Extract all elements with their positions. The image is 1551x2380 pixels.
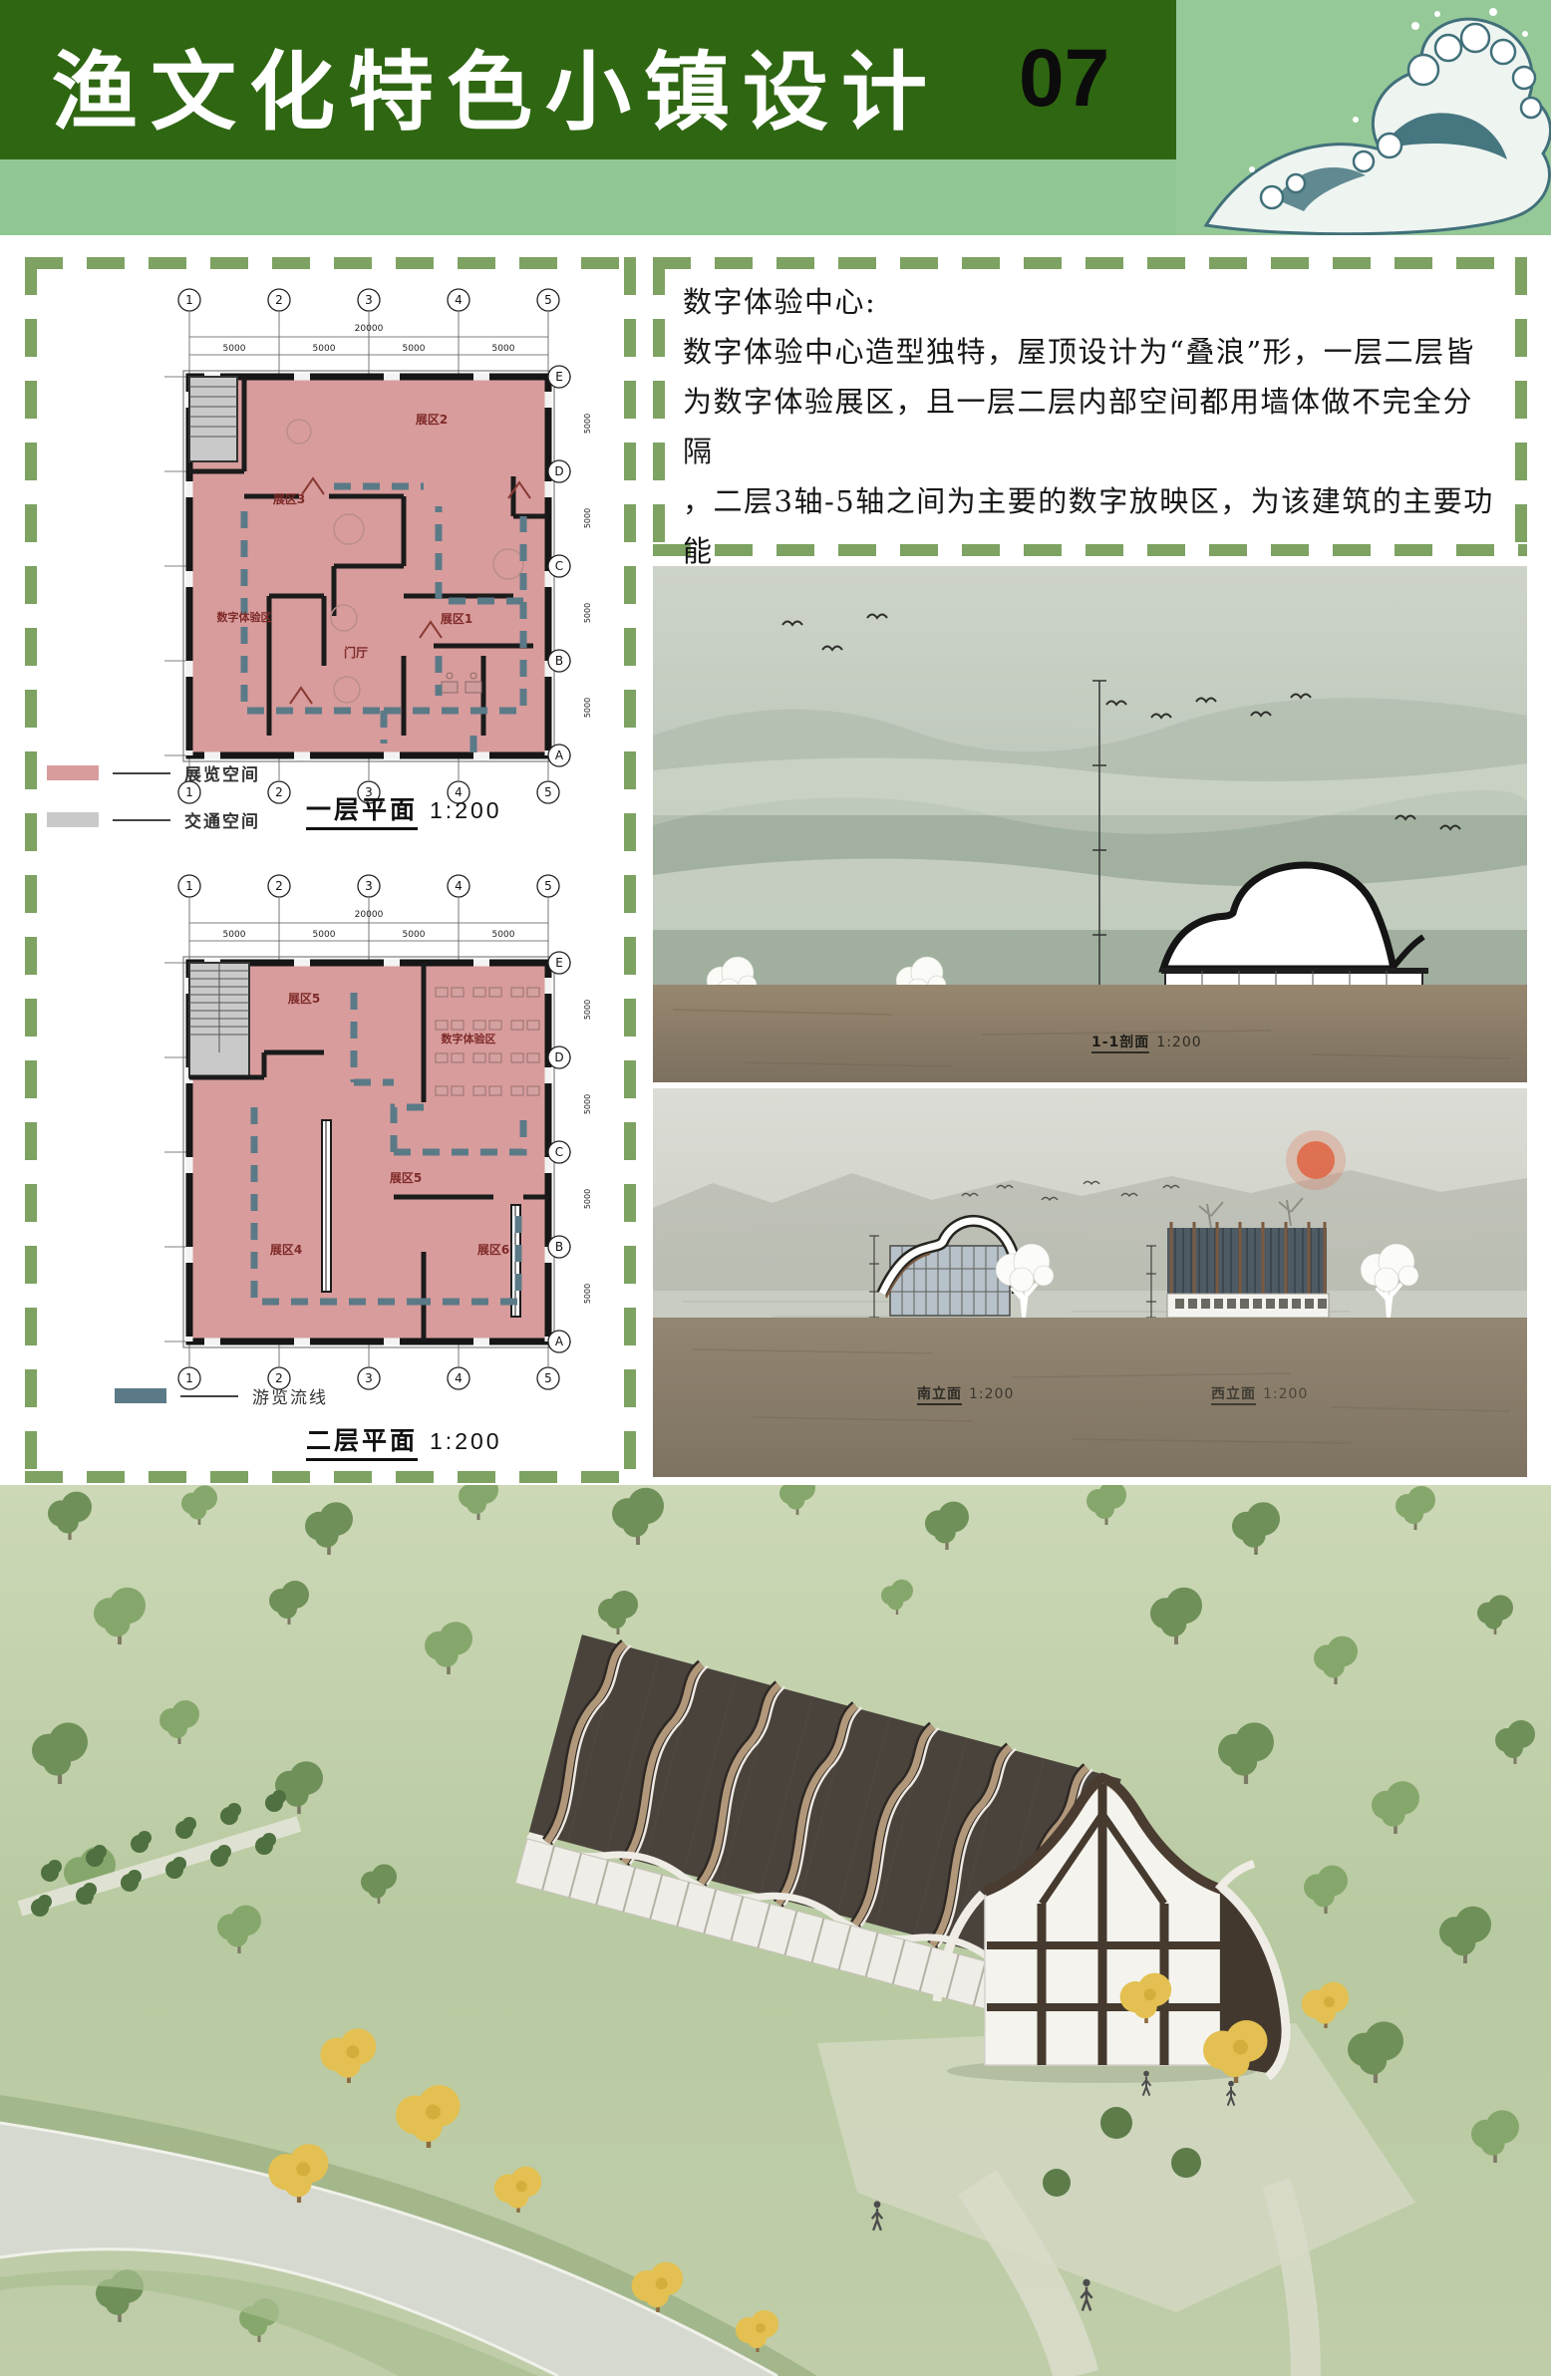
svg-text:展区1: 展区1	[441, 612, 472, 626]
aerial-render-art	[0, 1485, 1551, 2376]
stair-floor1	[189, 377, 237, 461]
panel-border-left	[653, 257, 665, 556]
svg-text:D: D	[554, 464, 563, 478]
intro-line: ，二层3轴-5轴之间为主要的数字放映区，为该建筑的主要功能	[683, 476, 1500, 576]
svg-text:5000: 5000	[583, 1284, 592, 1304]
poster-page: { "header": { "title": "渔文化特色小镇设计", "pag…	[0, 0, 1551, 2376]
page-number: 07	[1019, 32, 1109, 126]
svg-text:展区3: 展区3	[273, 492, 305, 506]
svg-text:5: 5	[544, 293, 552, 307]
svg-text:5: 5	[544, 785, 552, 799]
floor1-plan: 20000 5000 5000 5000 5000 5000 5000 5000…	[95, 267, 613, 810]
svg-text:20000: 20000	[355, 910, 384, 920]
aerial-render	[0, 1485, 1551, 2376]
legend-circulation: 交通空间	[47, 807, 260, 832]
panel-border-left	[25, 257, 37, 1483]
floor2-plan: 20000 5000 5000 5000 5000 5000 5000 5000…	[95, 853, 613, 1396]
svg-text:展区4: 展区4	[270, 1243, 302, 1257]
intro-line: 为数字体验展区，且一层二层内部空间都用墙体做不完全分隔	[683, 377, 1500, 476]
svg-text:5000: 5000	[583, 698, 592, 718]
grid-numbers-top: 12 34 5	[178, 875, 559, 897]
section-view-image: 1-1剖面1:200	[653, 566, 1527, 1082]
svg-text:门厅: 门厅	[344, 645, 368, 660]
svg-text:2: 2	[275, 293, 283, 307]
intro-line: 数字体验中心造型独特，屋顶设计为“叠浪”形，一层二层皆	[683, 327, 1500, 377]
floor2-title: 二层平面1:200	[306, 1421, 502, 1457]
svg-text:展区2: 展区2	[416, 413, 448, 427]
svg-text:B: B	[555, 654, 563, 668]
svg-text:C: C	[555, 559, 563, 573]
svg-text:5: 5	[544, 879, 552, 893]
svg-text:4: 4	[455, 879, 463, 893]
svg-text:B: B	[555, 1240, 563, 1254]
svg-text:5000: 5000	[583, 1094, 592, 1114]
west-elevation-label: 西立面1:200	[1211, 1383, 1308, 1403]
svg-text:5000: 5000	[403, 930, 426, 940]
svg-text:1: 1	[185, 293, 193, 307]
floor1-title: 一层平面1:200	[306, 790, 502, 826]
svg-text:D: D	[554, 1050, 563, 1064]
panel-border-bottom	[25, 1471, 636, 1483]
svg-text:5000: 5000	[583, 1000, 592, 1020]
svg-text:数字体验区: 数字体验区	[442, 1032, 496, 1045]
panel-border-right	[624, 257, 636, 1483]
intro-panel: 数字体验中心: 数字体验中心造型独特，屋顶设计为“叠浪”形，一层二层皆 为数字体…	[653, 257, 1527, 556]
svg-text:A: A	[555, 1335, 564, 1348]
intro-heading: 数字体验中心:	[683, 277, 1500, 327]
panel-border-right	[1515, 257, 1527, 556]
section-view-art	[653, 566, 1527, 1082]
legend-swatch-circulation	[47, 812, 99, 827]
svg-text:5000: 5000	[583, 1189, 592, 1209]
svg-text:5000: 5000	[583, 414, 592, 434]
svg-text:5000: 5000	[492, 344, 515, 354]
svg-text:E: E	[555, 370, 563, 384]
svg-text:3: 3	[365, 879, 373, 893]
svg-text:数字体验区: 数字体验区	[217, 610, 272, 624]
legend-line	[180, 1395, 238, 1397]
elevations-art	[653, 1088, 1527, 1477]
grid-numbers-top: 12 34 5	[178, 289, 559, 311]
svg-text:2: 2	[275, 879, 283, 893]
elevations-image: 南立面1:200 西立面1:200	[653, 1088, 1527, 1477]
legend-swatch-route	[115, 1388, 166, 1403]
svg-text:5000: 5000	[313, 930, 336, 940]
svg-text:5: 5	[544, 1371, 552, 1385]
section-label: 1-1剖面1:200	[1091, 1032, 1202, 1051]
page-title: 渔文化特色小镇设计	[52, 22, 940, 147]
svg-text:5000: 5000	[403, 344, 426, 354]
legend-route: 游览流线	[115, 1383, 328, 1408]
legend-exhibition: 展览空间	[47, 760, 260, 785]
svg-text:2: 2	[275, 785, 283, 799]
wave-icon	[1176, 0, 1551, 235]
svg-text:5000: 5000	[313, 344, 336, 354]
legend-line	[113, 819, 170, 821]
svg-text:4: 4	[455, 1371, 463, 1385]
south-elevation-label: 南立面1:200	[917, 1383, 1014, 1403]
svg-text:E: E	[555, 956, 563, 970]
svg-text:展区5: 展区5	[390, 1171, 422, 1185]
svg-text:A: A	[555, 748, 564, 762]
svg-text:C: C	[555, 1145, 563, 1159]
svg-text:1: 1	[185, 879, 193, 893]
panel-border-top	[653, 257, 1527, 269]
svg-text:3: 3	[365, 1371, 373, 1385]
svg-text:4: 4	[455, 293, 463, 307]
svg-text:5000: 5000	[583, 508, 592, 528]
svg-text:5000: 5000	[223, 344, 246, 354]
svg-text:1: 1	[185, 785, 193, 799]
svg-text:3: 3	[365, 293, 373, 307]
legend-swatch-exhibition	[47, 765, 99, 780]
legend-line	[113, 772, 170, 774]
svg-text:展区5: 展区5	[288, 992, 320, 1006]
svg-text:5000: 5000	[223, 930, 246, 940]
svg-text:5000: 5000	[583, 603, 592, 623]
wave-art-box	[1176, 0, 1551, 235]
svg-text:5000: 5000	[492, 930, 515, 940]
svg-text:20000: 20000	[355, 324, 384, 334]
floor-plans-panel: 20000 5000 5000 5000 5000 5000 5000 5000…	[25, 257, 636, 1483]
accent-strip	[0, 159, 1176, 235]
svg-text:展区6: 展区6	[477, 1243, 509, 1257]
